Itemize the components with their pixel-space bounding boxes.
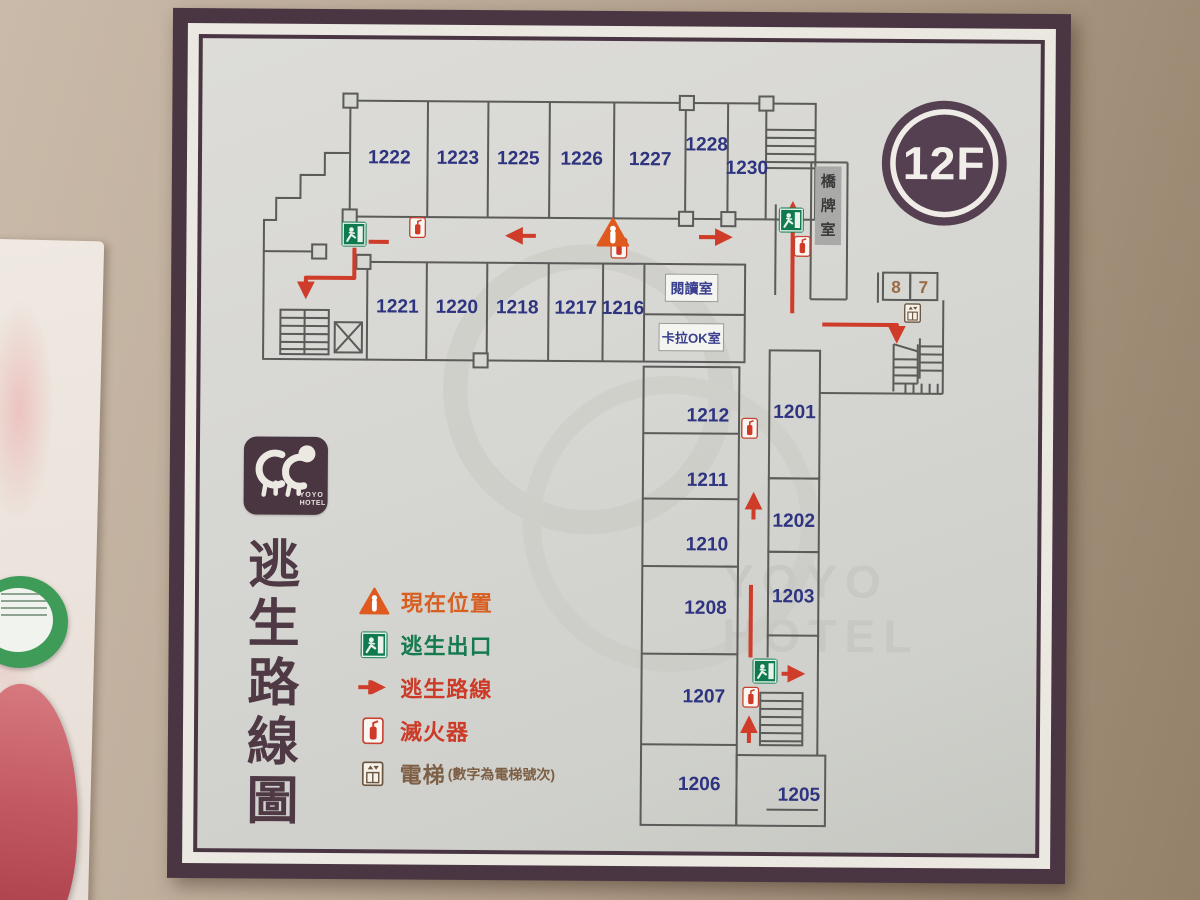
title-char: 圖 — [235, 772, 309, 832]
room-number: 1207 — [683, 686, 726, 707]
elevator-number-8: 8 — [891, 278, 901, 297]
room-number: 1206 — [678, 774, 721, 795]
room-number: 1223 — [436, 148, 479, 169]
current-location-icon — [598, 219, 628, 246]
elevator-number-7: 7 — [918, 278, 928, 297]
room-number: 1202 — [772, 511, 815, 532]
sticker-text-area — [0, 588, 53, 652]
room-number: 1226 — [560, 149, 603, 170]
room-number: 1222 — [368, 147, 411, 168]
elevator-icon — [905, 304, 921, 322]
svg-text:牌: 牌 — [821, 197, 836, 215]
fire-extinguisher-icon — [794, 236, 810, 256]
legend-row-current-location: 現在位置 — [357, 587, 557, 616]
room-number: 1220 — [435, 297, 478, 318]
logo-text-line2: HOTEL — [300, 500, 326, 507]
room-number: 1210 — [686, 534, 729, 555]
fire-extinguisher-icon — [743, 687, 759, 707]
route-arrow-icon — [356, 680, 390, 694]
legend-row-extinguisher: 滅火器 — [356, 716, 556, 745]
legend: 現在位置 逃生出口 逃生路線 — [356, 587, 557, 803]
room-number: 1205 — [778, 785, 821, 806]
room-number: 1217 — [554, 298, 597, 319]
room-number: 1211 — [687, 470, 729, 491]
title-char: 生 — [237, 595, 311, 655]
floor-badge-text: 12F — [903, 137, 986, 190]
karaoke-room-label: 卡拉OK室 — [662, 330, 721, 346]
sign-frame: YOYO HOTEL — [167, 8, 1071, 884]
title-char: 逃 — [237, 536, 311, 596]
current-location-icon — [357, 587, 391, 615]
photo-of-escape-route-sign: YOYO HOTEL — [0, 0, 1200, 900]
title-char: 路 — [236, 654, 310, 714]
legend-note: (數字為電梯號次) — [448, 764, 555, 785]
logo-text-line1: YOYO — [300, 492, 324, 499]
exit-icon — [779, 207, 804, 232]
sign-inner-band: YOYO HOTEL — [182, 23, 1056, 869]
room-number: 1221 — [376, 296, 419, 317]
fire-extinguisher-icon — [356, 717, 390, 744]
room-number: 1212 — [687, 405, 730, 426]
legend-label: 逃生出口 — [400, 628, 492, 661]
legend-row-elevator: 電梯 (數字為電梯號次) — [356, 759, 556, 788]
elevator-icon — [356, 761, 390, 786]
hotel-logo-mark: YOYO HOTEL — [244, 436, 329, 515]
fire-extinguisher-icon — [742, 418, 758, 438]
legend-label: 滅火器 — [400, 714, 469, 746]
svg-text:室: 室 — [820, 221, 835, 239]
title-char: 線 — [236, 713, 310, 773]
legend-label: 逃生路線 — [400, 671, 492, 704]
room-number: 1218 — [496, 297, 539, 318]
legend-label: 電梯 — [400, 757, 446, 789]
exit-icon — [341, 221, 366, 246]
floor-badge: 12F — [881, 100, 1007, 226]
room-number: 1225 — [497, 148, 540, 169]
legend-label: 現在位置 — [401, 585, 493, 618]
sign-title-vertical: 逃 生 路 線 圖 — [235, 536, 311, 832]
bridge-room-label: 橋 牌 室 — [820, 173, 836, 239]
room-number: 1227 — [629, 149, 672, 170]
reflection-highlight — [0, 299, 57, 521]
room-number: 1216 — [602, 298, 645, 319]
exit-icon — [357, 631, 391, 658]
room-number: 1230 — [725, 158, 768, 179]
room-number: 1203 — [772, 586, 815, 607]
hotel-logo: YOYO HOTEL — [244, 436, 329, 515]
legend-row-route: 逃生路線 — [356, 673, 556, 702]
legend-row-exit: 逃生出口 — [357, 630, 557, 659]
room-number: 1208 — [684, 598, 727, 619]
room-number: 1228 — [685, 134, 728, 155]
reading-room-label: 閱讀室 — [670, 280, 712, 296]
fire-extinguisher-icon — [410, 218, 426, 238]
svg-text:橋: 橋 — [821, 173, 837, 191]
room-number: 1201 — [773, 402, 816, 423]
exit-icon — [752, 658, 777, 683]
sign-face: YOYO HOTEL — [193, 34, 1045, 858]
